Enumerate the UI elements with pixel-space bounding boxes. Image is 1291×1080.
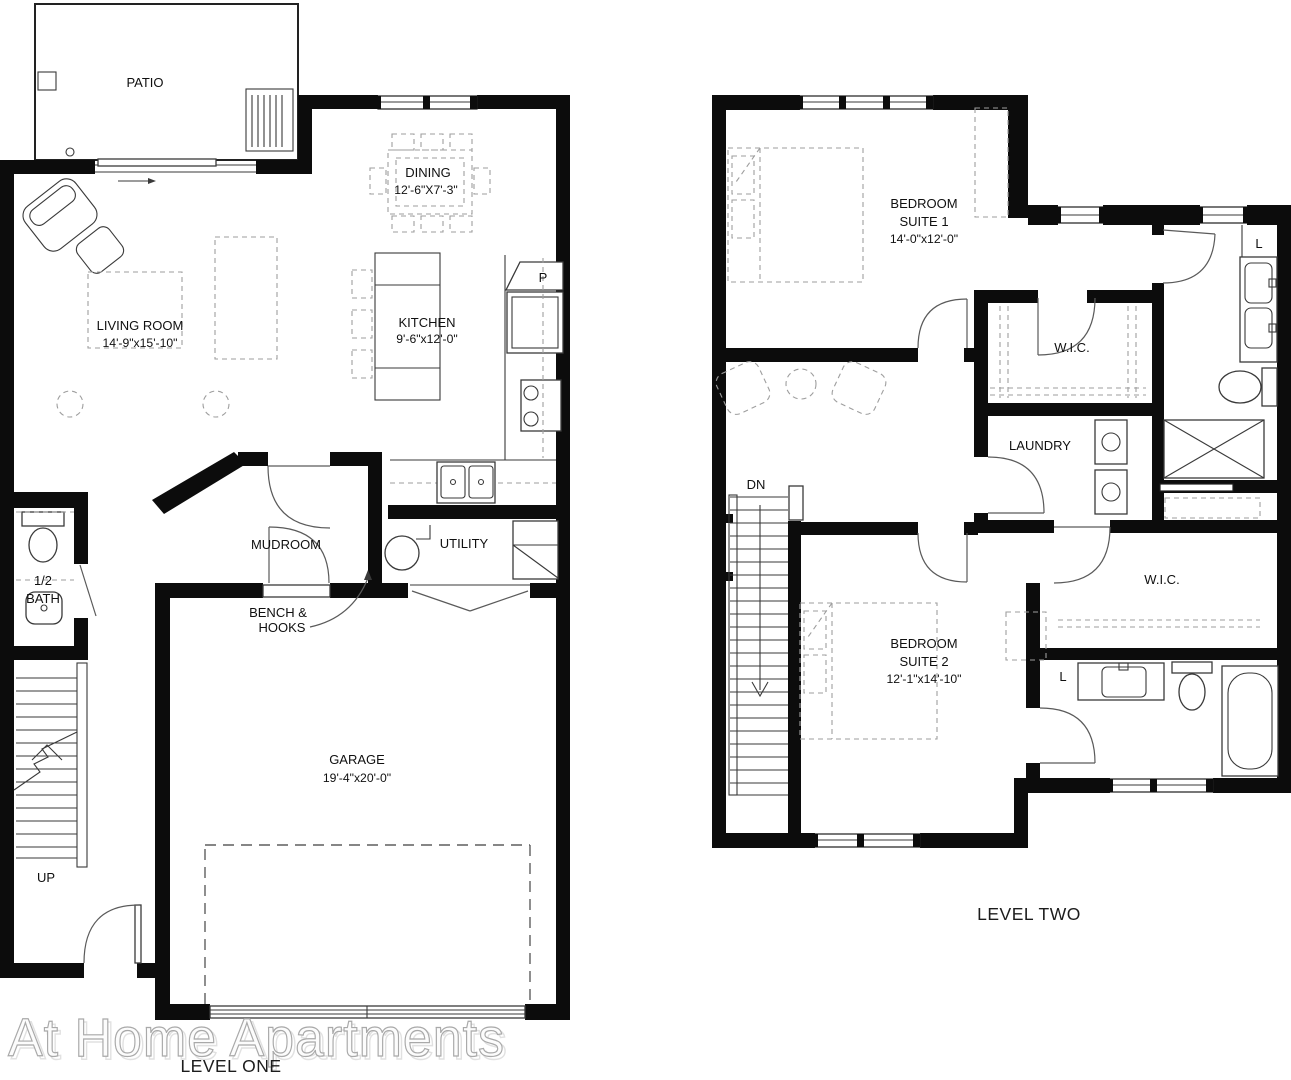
half-bath-fixtures — [16, 512, 74, 624]
closet-outline — [975, 108, 1008, 217]
level-one-walls — [0, 95, 570, 1020]
kitchen-sink — [437, 462, 495, 503]
level-one-caption: LEVEL ONE — [180, 1056, 281, 1076]
refrigerator — [507, 292, 563, 353]
bath1-fixtures — [1164, 225, 1277, 478]
half-bath-label-line1: 1/2 — [34, 573, 52, 588]
kitchen-label: KITCHEN — [398, 315, 455, 330]
level-one-plan: PATIO LIVING ROOM 14'-9"x15'-10" DINING … — [0, 4, 570, 1020]
bench-seat — [263, 585, 330, 597]
bench-label-line1: BENCH & — [249, 605, 307, 620]
wic2-label: W.I.C. — [1144, 572, 1179, 587]
toilet-bowl — [29, 528, 57, 562]
dining-dims: 12'-6"X7'-3" — [394, 183, 457, 197]
half-bath-label-line2: BATH — [26, 591, 60, 606]
stairs-up — [14, 663, 87, 867]
toilet-tank — [1262, 368, 1277, 406]
washer — [1095, 420, 1127, 464]
garage-entry-door — [269, 527, 329, 583]
suite1-label-line2: SUITE 1 — [899, 214, 948, 229]
pantry-cabinet — [506, 262, 563, 290]
kitchen-dims: 9'-6"x12'-0" — [396, 332, 457, 346]
bed-outline — [728, 148, 863, 282]
sofa-outline — [215, 237, 277, 359]
laundry-label: LAUNDRY — [1009, 438, 1071, 453]
patio-label: PATIO — [126, 75, 163, 90]
suite1-door — [918, 299, 967, 348]
toilet-bowl — [1179, 674, 1205, 710]
suite2-dims: 12'-1"x14'-10" — [887, 672, 962, 686]
living-room-label: LIVING ROOM — [97, 318, 184, 333]
ottoman — [73, 224, 127, 277]
level-two-plan: BEDROOM SUITE 1 14'-0"x12'-0" W.I.C. LAU… — [712, 95, 1291, 848]
patio-deck — [35, 4, 298, 160]
bench-label-line2: HOOKS — [259, 620, 306, 635]
bath2-fixtures — [1078, 662, 1278, 776]
mudroom-label: MUDROOM — [251, 537, 321, 552]
entry-door — [84, 905, 141, 963]
utility-bifold-door — [410, 585, 530, 611]
utility-label: UTILITY — [440, 536, 489, 551]
mudroom-door — [268, 466, 330, 528]
living-room-dims: 14'-9"x15'-10" — [103, 336, 178, 350]
linen1-label: L — [1255, 236, 1262, 251]
toilet-tank — [1172, 662, 1212, 673]
suite2-door — [918, 533, 967, 582]
living-room-furniture — [18, 174, 277, 417]
garage-label: GARAGE — [329, 752, 385, 767]
wic2-door — [1054, 527, 1110, 583]
suite2-furniture — [800, 603, 1046, 739]
suite2-label-line1: BEDROOM — [890, 636, 957, 651]
hall-furniture — [713, 358, 889, 417]
laundry-fixtures — [1095, 420, 1127, 514]
level-two-caption: LEVEL TWO — [977, 904, 1081, 924]
half-bath-door — [80, 565, 96, 616]
dining-label: DINING — [405, 165, 451, 180]
bath2-door — [1040, 708, 1095, 763]
floor-plan-drawing: PATIO LIVING ROOM 14'-9"x15'-10" DINING … — [0, 0, 1291, 1080]
garage-area — [205, 845, 530, 1018]
suite1-furniture — [728, 108, 1008, 282]
vanity — [1078, 663, 1164, 700]
wic1-label: W.I.C. — [1054, 340, 1089, 355]
suite1-label-line1: BEDROOM — [890, 196, 957, 211]
kitchen-fixtures — [352, 253, 563, 503]
dryer — [1095, 470, 1127, 514]
water-heater — [385, 536, 419, 570]
bath1-door — [1163, 230, 1215, 283]
grill-icon — [252, 95, 282, 147]
patio-slider-door — [95, 159, 256, 184]
garage-dims: 19'-4"x20'-0" — [323, 771, 391, 785]
linen2-label: L — [1059, 669, 1066, 684]
armchair — [18, 174, 102, 256]
toilet-bowl — [1219, 371, 1261, 403]
toilet-tank — [22, 512, 64, 526]
bed-outline — [800, 603, 937, 739]
stairs-up-label: UP — [37, 870, 55, 885]
pantry-label: P — [539, 270, 548, 285]
stairs-dn-label: DN — [747, 477, 766, 492]
suite1-dims: 14'-0"x12'-0" — [890, 232, 958, 246]
suite2-label-line2: SUITE 2 — [899, 654, 948, 669]
floor-plan-sheet: PATIO LIVING ROOM 14'-9"x15'-10" DINING … — [0, 0, 1291, 1080]
stair-landing-post — [789, 486, 803, 520]
laundry-door — [988, 457, 1044, 513]
